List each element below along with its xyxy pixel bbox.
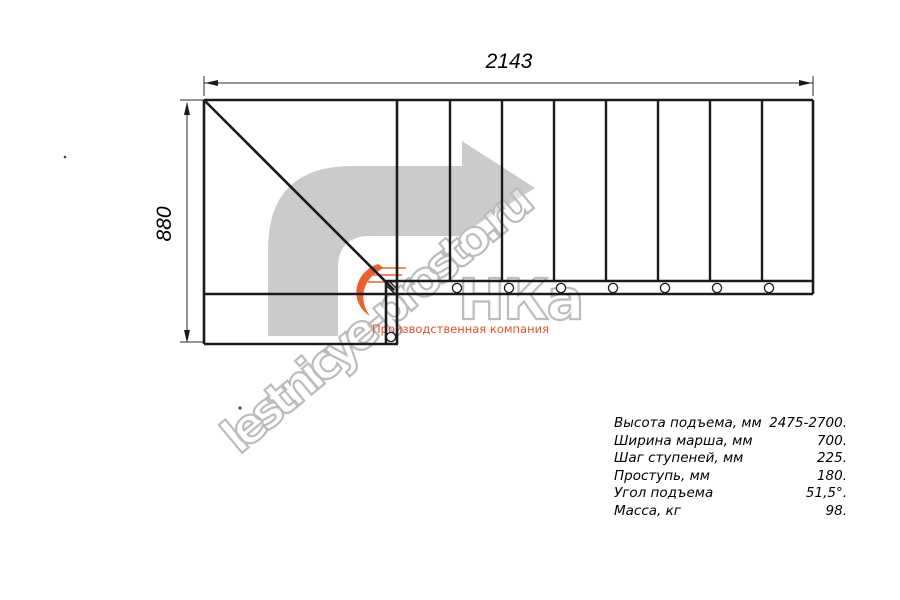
spec-label: Ширина марша, мм — [614, 433, 753, 451]
spec-row: Шаг ступеней, мм 225. — [614, 450, 847, 468]
spec-value: 51,5°. — [806, 485, 847, 503]
spec-row: Проступь, мм 180. — [614, 468, 847, 486]
spec-value: 180. — [817, 468, 847, 486]
spec-value: 700. — [817, 433, 847, 451]
spec-row: Масса, кг 98. — [614, 503, 847, 521]
top-dimension-label: 2143 — [459, 50, 559, 74]
plan-outline-lines — [204, 100, 813, 344]
spec-value: 98. — [826, 503, 847, 521]
spec-label: Масса, кг — [614, 503, 681, 521]
staircase-drawing-page: lestnicye-prosto.ru НКа Производственная… — [0, 0, 900, 600]
spec-value: 2475-2700. — [769, 415, 847, 433]
spec-label: Угол подъема — [614, 485, 713, 503]
spec-row: Угол подъема 51,5°. — [614, 485, 847, 503]
dimension-arrowheads — [184, 80, 812, 343]
landing-diagonal-line — [204, 100, 394, 290]
spec-label: Высота подъема, мм — [614, 415, 762, 433]
dimension-lines — [180, 76, 813, 342]
left-dimension-label: 880 — [153, 193, 177, 255]
spec-value: 225. — [817, 450, 847, 468]
spec-row: Ширина марша, мм 700. — [614, 433, 847, 451]
spec-label: Шаг ступеней, мм — [614, 450, 743, 468]
step-edge-lines — [450, 100, 762, 281]
spec-label: Проступь, мм — [614, 468, 710, 486]
baluster-circles — [386, 283, 773, 341]
specs-table: Высота подъема, мм 2475-2700. Ширина мар… — [614, 415, 847, 521]
spec-row: Высота подъема, мм 2475-2700. — [614, 415, 847, 433]
